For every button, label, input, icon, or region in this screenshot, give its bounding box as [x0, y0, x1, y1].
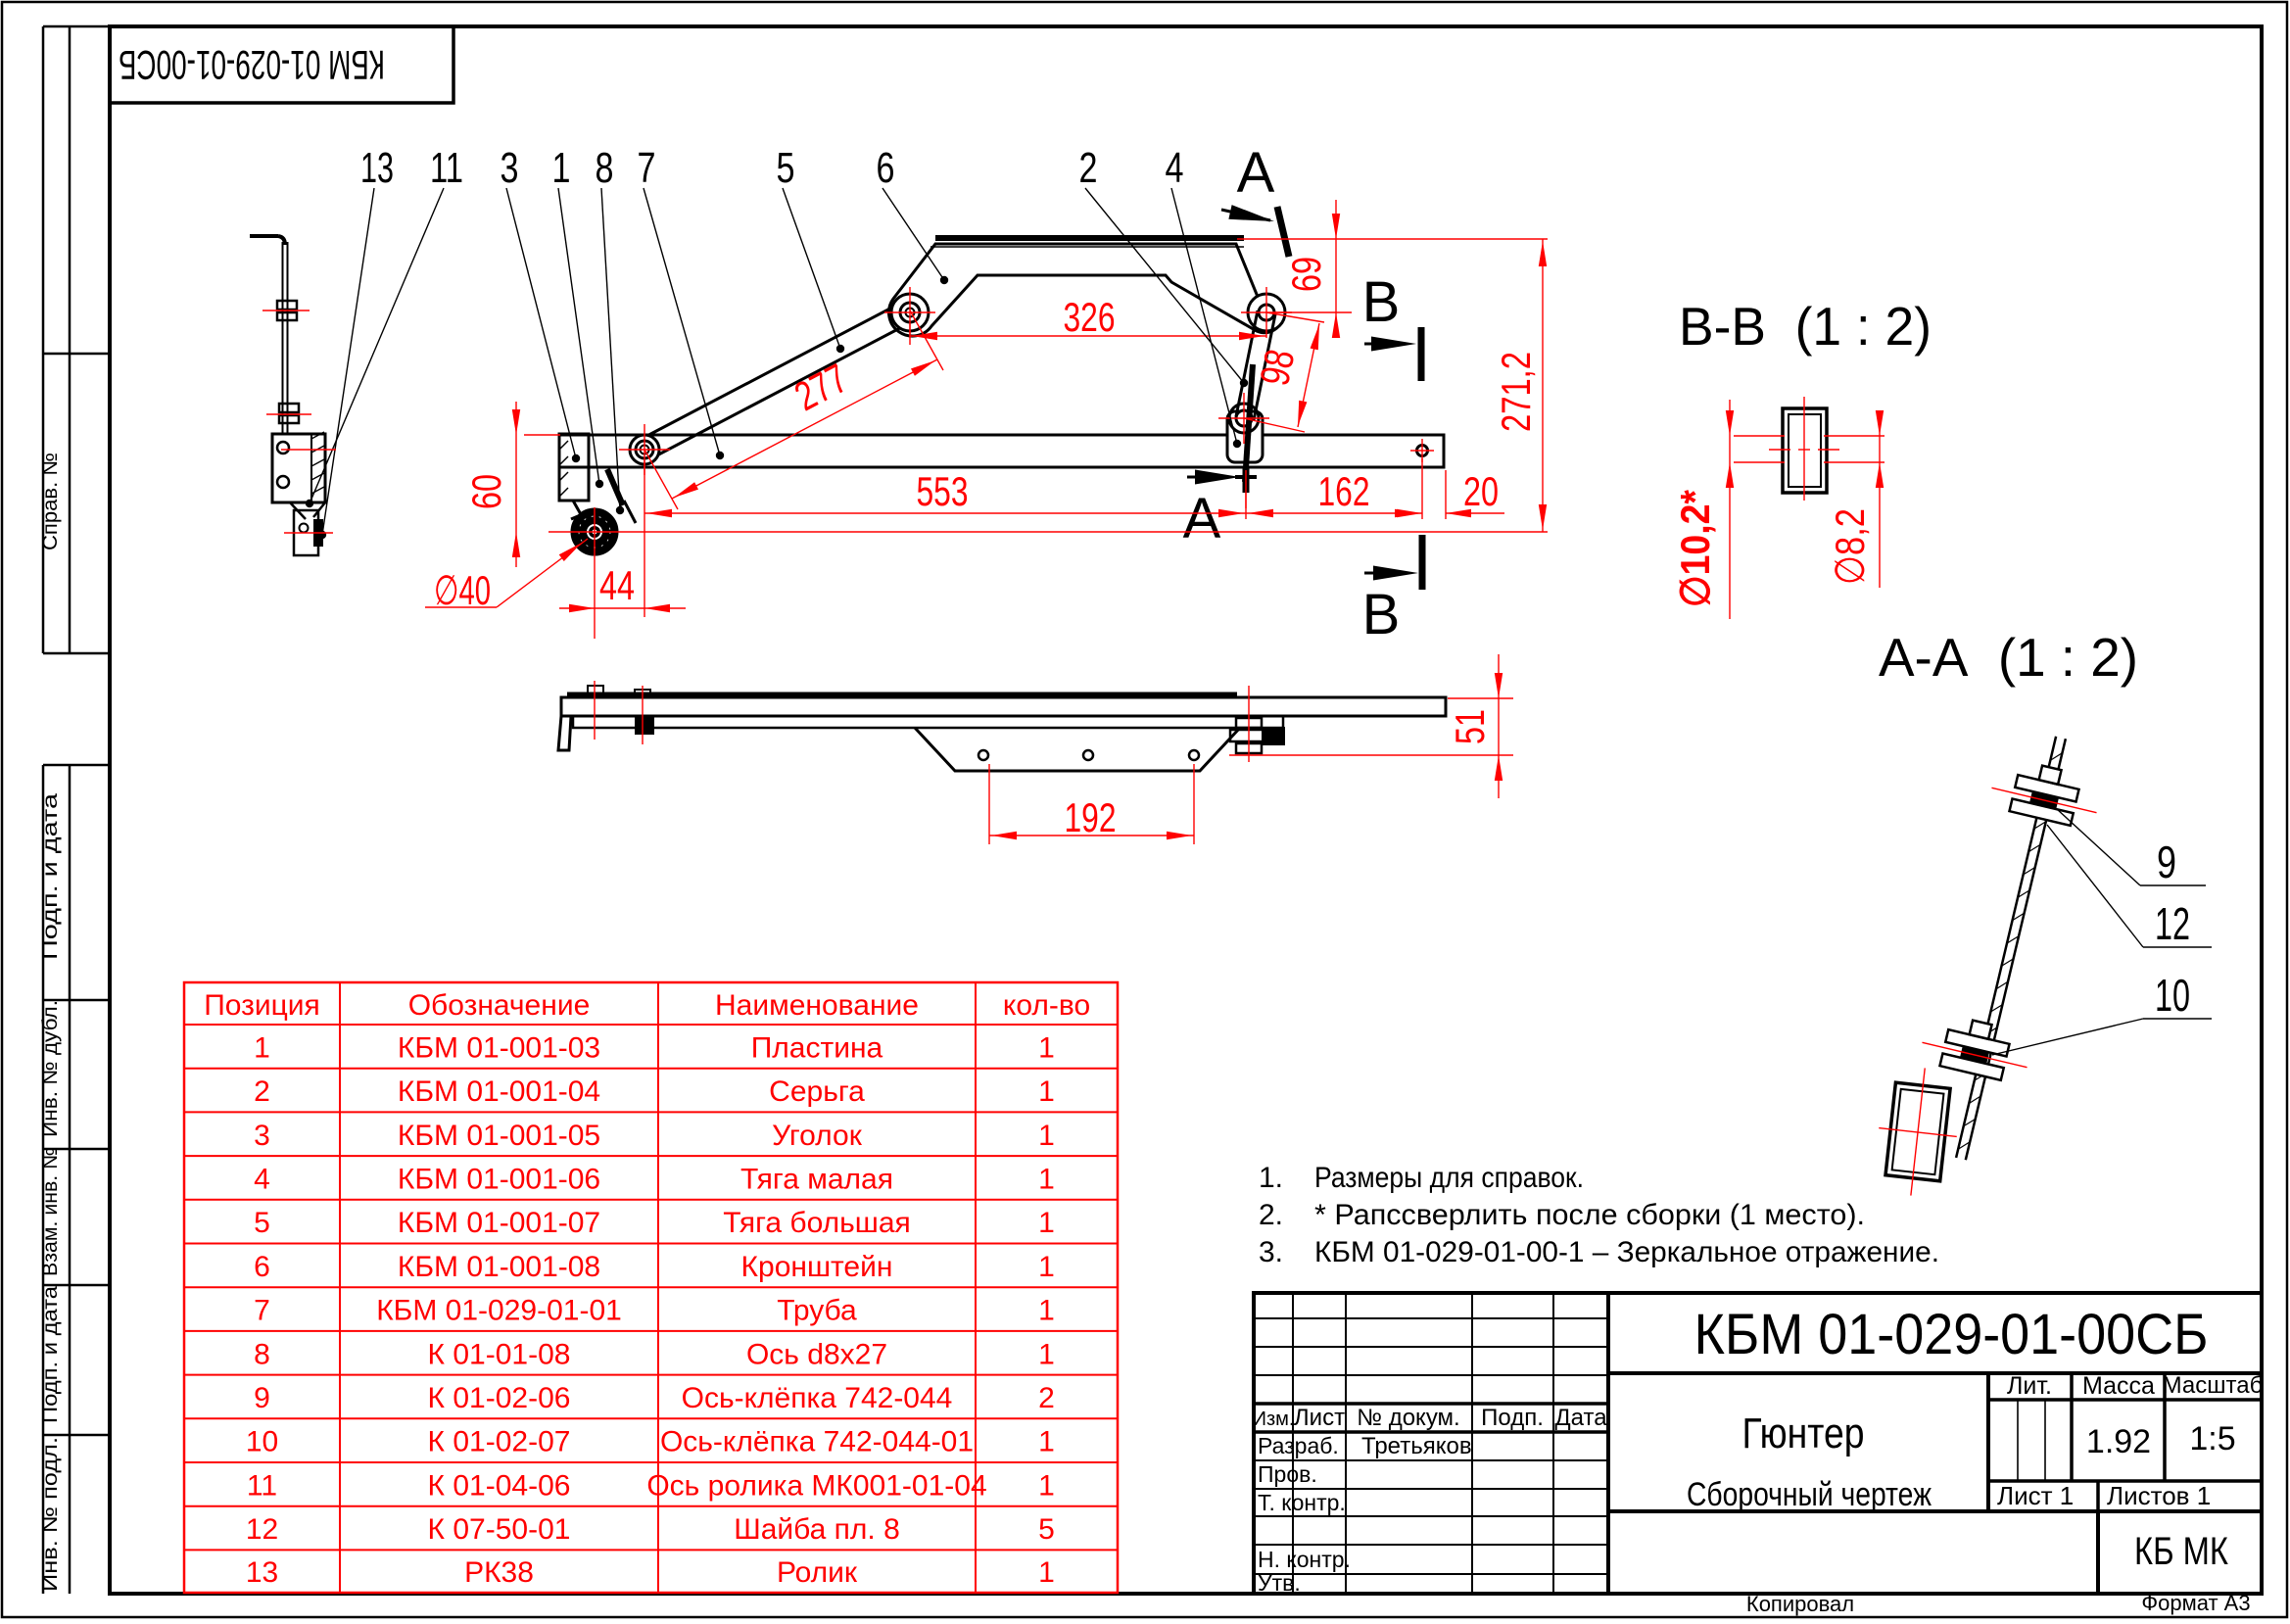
svg-text:Н. контр.: Н. контр.	[1258, 1547, 1351, 1572]
svg-text:Ось d8x27: Ось d8x27	[746, 1338, 887, 1370]
svg-text:2: 2	[1079, 144, 1098, 192]
svg-text:13: 13	[246, 1556, 278, 1589]
svg-text:553: 553	[917, 468, 969, 514]
svg-text:Т. контр.: Т. контр.	[1258, 1490, 1346, 1515]
svg-text:В-В (1 : 2): В-В (1 : 2)	[1679, 296, 1932, 357]
svg-text:1: 1	[1038, 1163, 1055, 1195]
svg-text:Третьяков: Третьяков	[1361, 1433, 1472, 1459]
svg-text:1: 1	[1038, 1426, 1055, 1458]
svg-text:Гюнтер: Гюнтер	[1742, 1409, 1865, 1457]
svg-text:Пластина: Пластина	[751, 1031, 883, 1064]
svg-text:Ось-клёпка 742-044: Ось-клёпка 742-044	[682, 1382, 953, 1414]
svg-text:10: 10	[246, 1426, 278, 1458]
svg-text:1: 1	[1038, 1338, 1055, 1370]
svg-text:Утв.: Утв.	[1258, 1570, 1301, 1596]
svg-text:Серьга: Серьга	[769, 1075, 865, 1108]
svg-text:В: В	[1362, 583, 1401, 646]
svg-text:6: 6	[254, 1251, 270, 1283]
svg-text:Подп. и дата: Подп. и дата	[39, 1286, 62, 1423]
svg-text:КБМ 01-029-01-00-1 – Зеркально: КБМ 01-029-01-00-1 – Зеркальное отражени…	[1314, 1236, 1939, 1268]
svg-text:Ось-клёпка 742-044-01: Ось-клёпка 742-044-01	[660, 1426, 974, 1458]
svg-text:Кронштейн: Кронштейн	[741, 1251, 893, 1283]
svg-text:13: 13	[360, 144, 394, 192]
svg-text:КБМ 01-001-07: КБМ 01-001-07	[398, 1207, 600, 1239]
svg-text:КБМ 01-029-01-01: КБМ 01-029-01-01	[376, 1295, 622, 1327]
svg-text:5: 5	[254, 1207, 270, 1239]
svg-text:Масса: Масса	[2082, 1372, 2155, 1400]
svg-text:Лист: Лист	[1294, 1405, 1345, 1431]
svg-text:1.: 1.	[1259, 1162, 1283, 1194]
svg-text:8: 8	[254, 1338, 270, 1370]
svg-text:Лист 1: Лист 1	[1997, 1481, 2074, 1510]
svg-text:Ось ролика МК001-01-04: Ось ролика МК001-01-04	[646, 1469, 986, 1502]
svg-text:1: 1	[254, 1031, 270, 1064]
svg-text:51: 51	[1447, 709, 1493, 744]
svg-text:9: 9	[254, 1382, 270, 1414]
svg-text:60: 60	[463, 474, 509, 509]
svg-text:КБМ 01-029-01-00СБ: КБМ 01-029-01-00СБ	[1694, 1303, 2209, 1366]
svg-text:∅10,2*: ∅10,2*	[1672, 489, 1718, 607]
svg-text:КБМ 01-001-06: КБМ 01-001-06	[398, 1163, 600, 1195]
svg-text:* Рапссверлить после сборки (1: * Рапссверлить после сборки (1 место).	[1314, 1199, 1865, 1231]
svg-text:162: 162	[1318, 468, 1370, 514]
svg-text:К 07-50-01: К 07-50-01	[428, 1513, 571, 1546]
svg-text:4: 4	[1166, 144, 1184, 192]
svg-text:В: В	[1362, 270, 1401, 334]
svg-text:1.92: 1.92	[2086, 1423, 2151, 1460]
svg-text:Дата: Дата	[1554, 1405, 1607, 1431]
svg-text:Инв. № дубл.: Инв. № дубл.	[39, 1000, 62, 1137]
svg-text:Тяга малая: Тяга малая	[740, 1163, 893, 1195]
svg-text:А-А (1 : 2): А-А (1 : 2)	[1879, 627, 2138, 688]
svg-text:КБМ 01-029-01-00СБ: КБМ 01-029-01-00СБ	[119, 42, 385, 88]
svg-text:К 01-02-06: К 01-02-06	[428, 1382, 571, 1414]
svg-text:Подп. и дата: Подп. и дата	[39, 793, 62, 960]
svg-text:Размеры для справок.: Размеры для справок.	[1314, 1162, 1584, 1194]
svg-text:КБМ 01-001-04: КБМ 01-001-04	[398, 1075, 600, 1108]
svg-text:∅8,2: ∅8,2	[1827, 508, 1873, 585]
svg-text:Сборочный чертеж: Сборочный чертеж	[1687, 1476, 1932, 1513]
svg-text:Позиция: Позиция	[204, 989, 320, 1022]
svg-text:6: 6	[877, 144, 895, 192]
svg-text:Справ. №: Справ. №	[39, 453, 62, 550]
svg-text:Взам. инв. №: Взам. инв. №	[39, 1147, 62, 1276]
svg-text:Шайба пл. 8: Шайба пл. 8	[734, 1513, 900, 1546]
svg-text:кол-во: кол-во	[1003, 989, 1090, 1022]
svg-text:8: 8	[596, 144, 614, 192]
svg-text:РК38: РК38	[464, 1556, 534, 1589]
svg-text:1: 1	[1038, 1556, 1055, 1589]
svg-text:7: 7	[638, 144, 656, 192]
svg-text:Обозначение: Обозначение	[408, 989, 591, 1022]
svg-text:10: 10	[2155, 970, 2190, 1021]
svg-text:1: 1	[1038, 1469, 1055, 1502]
svg-text:К 01-01-08: К 01-01-08	[428, 1338, 571, 1370]
svg-text:Формат А3: Формат А3	[2141, 1591, 2250, 1615]
svg-text:9: 9	[2157, 836, 2176, 887]
svg-text:2.: 2.	[1259, 1199, 1283, 1231]
svg-text:20: 20	[1463, 468, 1499, 514]
svg-text:2: 2	[1038, 1382, 1055, 1414]
svg-text:А: А	[1237, 141, 1275, 205]
svg-text:Пров.: Пров.	[1258, 1461, 1317, 1487]
svg-text:1: 1	[1038, 1295, 1055, 1327]
svg-text:3: 3	[254, 1120, 270, 1152]
svg-text:1: 1	[1038, 1120, 1055, 1152]
svg-text:Масштаб: Масштаб	[2163, 1372, 2264, 1399]
svg-text:Листов 1: Листов 1	[2107, 1481, 2211, 1510]
svg-text:11: 11	[430, 144, 463, 192]
svg-text:44: 44	[599, 562, 635, 608]
svg-text:1:5: 1:5	[2189, 1420, 2235, 1457]
svg-text:12: 12	[246, 1513, 278, 1546]
svg-text:5: 5	[777, 144, 795, 192]
svg-text:3: 3	[501, 144, 519, 192]
svg-text:Подп.: Подп.	[1481, 1405, 1544, 1431]
svg-text:1: 1	[552, 144, 571, 192]
svg-text:192: 192	[1065, 794, 1117, 840]
svg-text:1: 1	[1038, 1207, 1055, 1239]
svg-text:3.: 3.	[1259, 1236, 1283, 1268]
svg-text:326: 326	[1064, 294, 1116, 340]
svg-text:Разраб.: Разраб.	[1258, 1433, 1339, 1458]
svg-text:Уголок: Уголок	[772, 1120, 863, 1152]
svg-text:1: 1	[1038, 1075, 1055, 1108]
svg-text:К 01-02-07: К 01-02-07	[428, 1426, 571, 1458]
svg-text:Изм.: Изм.	[1253, 1409, 1295, 1430]
svg-text:Копировал: Копировал	[1746, 1592, 1854, 1616]
svg-text:1: 1	[1038, 1251, 1055, 1283]
svg-text:1: 1	[1038, 1031, 1055, 1064]
svg-text:Наименование: Наименование	[715, 989, 919, 1022]
svg-text:КБМ 01-001-05: КБМ 01-001-05	[398, 1120, 600, 1152]
svg-text:69: 69	[1283, 257, 1329, 292]
svg-text:Лит.: Лит.	[2007, 1372, 2052, 1400]
svg-text:271,2: 271,2	[1493, 352, 1539, 432]
svg-text:∅40: ∅40	[434, 567, 491, 613]
svg-text:12: 12	[2155, 898, 2190, 949]
svg-text:11: 11	[247, 1469, 277, 1502]
svg-text:2: 2	[254, 1075, 270, 1108]
svg-text:К 01-04-06: К 01-04-06	[428, 1469, 571, 1502]
svg-text:Ролик: Ролик	[777, 1556, 858, 1589]
svg-text:А: А	[1183, 487, 1221, 550]
svg-text:4: 4	[254, 1163, 270, 1195]
svg-text:№ докум.: № докум.	[1357, 1405, 1459, 1431]
svg-text:5: 5	[1038, 1513, 1055, 1546]
svg-text:Тяга большая: Тяга большая	[723, 1207, 911, 1239]
svg-text:КБМ 01-001-03: КБМ 01-001-03	[398, 1031, 600, 1064]
svg-text:Инв. № подл.: Инв. № подл.	[39, 1437, 62, 1592]
svg-text:КБ МК: КБ МК	[2134, 1530, 2229, 1573]
svg-text:Труба: Труба	[777, 1295, 857, 1327]
svg-text:7: 7	[254, 1295, 270, 1327]
svg-text:КБМ 01-001-08: КБМ 01-001-08	[398, 1251, 600, 1283]
